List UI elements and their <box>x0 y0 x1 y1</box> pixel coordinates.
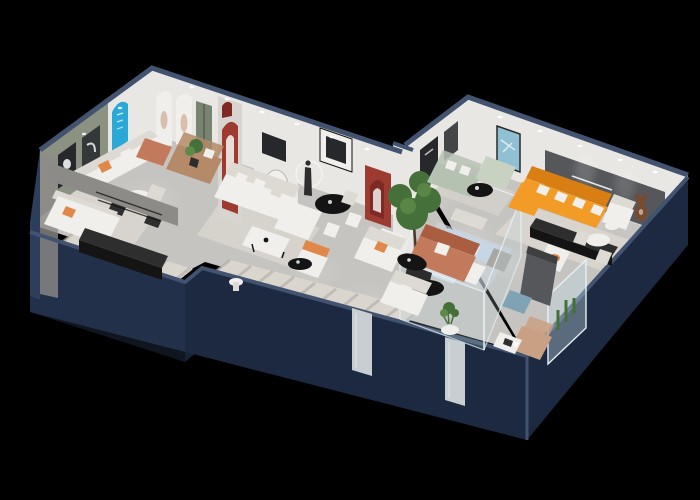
red-arch-column <box>218 96 242 225</box>
black-side-table <box>288 258 312 270</box>
black-round-coffee-table <box>467 183 493 197</box>
mirror-panel <box>352 308 372 376</box>
white-side-table <box>441 325 459 335</box>
floorplan-render <box>0 0 700 500</box>
table-decor <box>264 238 269 243</box>
white-round-table <box>586 234 610 247</box>
mirror-panel <box>445 337 465 406</box>
showroom-render-stage <box>0 0 700 500</box>
bear-head <box>637 197 646 206</box>
red-j-arch-display <box>365 165 391 228</box>
